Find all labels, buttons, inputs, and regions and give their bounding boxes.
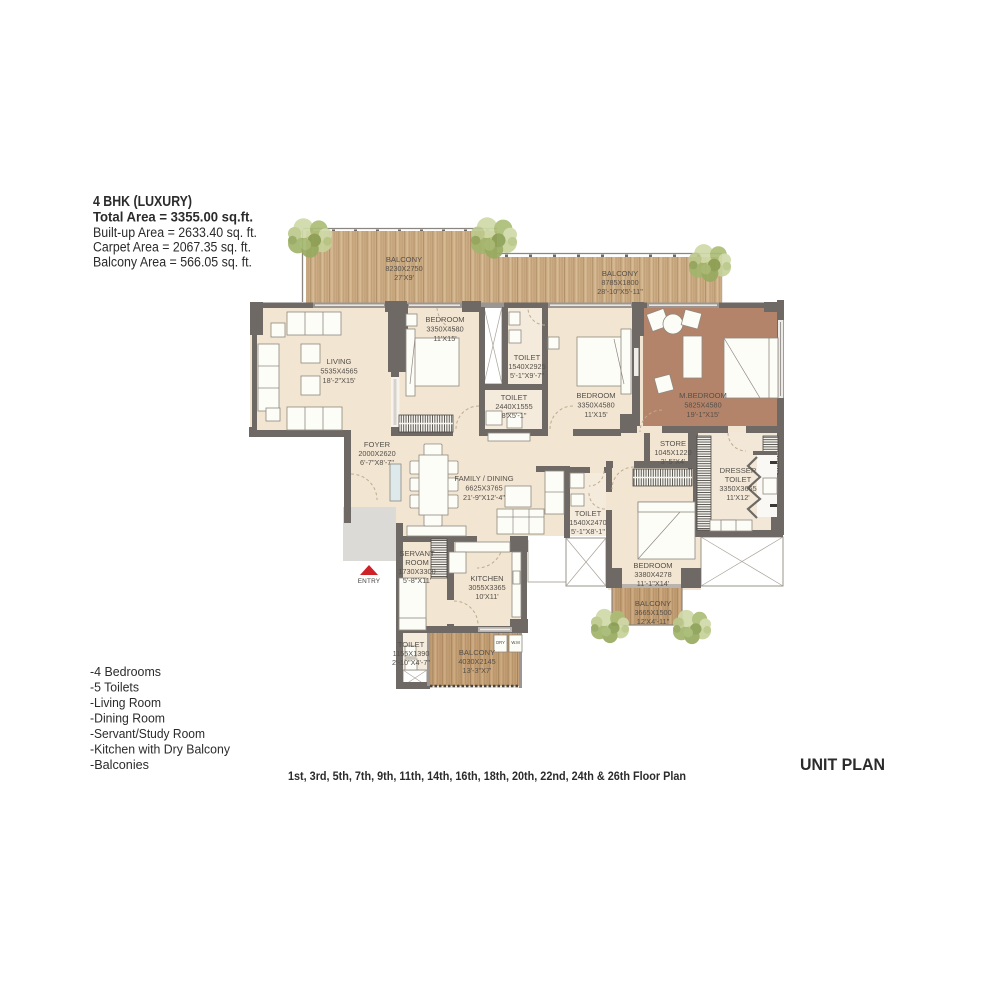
svg-text:10'X11': 10'X11' [475, 592, 499, 601]
svg-text:3665X1500: 3665X1500 [634, 608, 671, 617]
svg-text:21'-9"X12'-4": 21'-9"X12'-4" [463, 493, 505, 502]
svg-text:11'X15': 11'X15' [433, 334, 457, 343]
svg-text:TOILET: TOILET [398, 640, 425, 649]
svg-text:5'-1"X9'-7": 5'-1"X9'-7" [510, 371, 544, 380]
svg-text:1730X3300: 1730X3300 [398, 567, 435, 576]
svg-text:3'-5"X4': 3'-5"X4' [661, 457, 686, 466]
svg-text:SERVANT: SERVANT [399, 549, 435, 558]
svg-text:BEDROOM: BEDROOM [425, 315, 464, 324]
svg-text:ENTRY: ENTRY [358, 578, 381, 585]
svg-text:STORE: STORE [660, 439, 686, 448]
svg-text:13'-3"X7': 13'-3"X7' [463, 666, 493, 675]
svg-text:LIVING: LIVING [327, 357, 352, 366]
svg-text:4030X2145: 4030X2145 [458, 657, 495, 666]
svg-text:5535X4565: 5535X4565 [320, 367, 357, 376]
svg-text:3380X4278: 3380X4278 [634, 570, 671, 579]
svg-text:2'-10"X4'-7": 2'-10"X4'-7" [392, 658, 430, 667]
svg-text:TOILET: TOILET [514, 353, 541, 362]
svg-text:2000X2620: 2000X2620 [358, 449, 395, 458]
svg-text:6'-7"X8'-7": 6'-7"X8'-7" [360, 458, 394, 467]
svg-text:12'X4'-11": 12'X4'-11" [637, 617, 670, 626]
svg-text:-Dining Room: -Dining Room [90, 712, 165, 726]
svg-text:6625X3765: 6625X3765 [465, 484, 502, 493]
svg-text:-Living Room: -Living Room [90, 696, 161, 710]
svg-text:1045X1220: 1045X1220 [654, 448, 691, 457]
svg-text:W.M: W.M [511, 640, 520, 645]
svg-text:-5 Toilets: -5 Toilets [90, 681, 139, 695]
svg-text:3350X4580: 3350X4580 [577, 401, 614, 410]
svg-text:5'-1"X8'-1": 5'-1"X8'-1" [571, 527, 605, 536]
svg-text:28'-10"X5'-11": 28'-10"X5'-11" [597, 287, 643, 296]
svg-text:FOYER: FOYER [364, 440, 391, 449]
svg-text:TOILET: TOILET [501, 393, 528, 402]
svg-text:BEDROOM: BEDROOM [576, 391, 615, 400]
svg-text:27'X9': 27'X9' [394, 273, 414, 282]
svg-text:KITCHEN: KITCHEN [470, 574, 503, 583]
svg-text:2440X1555: 2440X1555 [495, 402, 532, 411]
svg-text:11'X12': 11'X12' [726, 493, 750, 502]
svg-text:5825X4580: 5825X4580 [684, 401, 721, 410]
svg-text:1155X1390: 1155X1390 [393, 649, 430, 658]
svg-text:8'X5'-1": 8'X5'-1" [502, 411, 527, 420]
svg-text:Total Area = 3355.00 sq.ft.: Total Area = 3355.00 sq.ft. [93, 209, 253, 225]
svg-text:3055X3365: 3055X3365 [468, 583, 505, 592]
svg-text:-4 Bedrooms: -4 Bedrooms [90, 665, 161, 679]
svg-text:BALCONY: BALCONY [386, 255, 422, 264]
svg-text:-Kitchen with Dry Balcony: -Kitchen with Dry Balcony [90, 743, 231, 757]
svg-text:M.BEDROOM: M.BEDROOM [679, 391, 727, 400]
svg-text:8230X2750: 8230X2750 [385, 264, 422, 273]
svg-text:Built-up Area = 2633.40 sq. ft: Built-up Area = 2633.40 sq. ft. [93, 225, 257, 240]
svg-text:BALCONY: BALCONY [602, 269, 638, 278]
svg-text:BEDROOM: BEDROOM [633, 561, 672, 570]
svg-text:3350X4580: 3350X4580 [426, 325, 463, 334]
svg-text:TOILET: TOILET [575, 509, 602, 518]
svg-text:BALCONY: BALCONY [459, 648, 495, 657]
svg-text:ROOM: ROOM [405, 558, 429, 567]
svg-text:Balcony Area = 566.05 sq. ft.: Balcony Area = 566.05 sq. ft. [93, 255, 252, 270]
svg-text:TOILET: TOILET [725, 475, 752, 484]
svg-text:1540X2925: 1540X2925 [508, 362, 545, 371]
svg-text:DRESSER: DRESSER [720, 466, 757, 475]
svg-text:FAMILY / DINING: FAMILY / DINING [454, 474, 513, 483]
svg-text:-Balconies: -Balconies [90, 758, 149, 772]
svg-text:8785X1800: 8785X1800 [601, 278, 638, 287]
svg-text:DRY: DRY [496, 640, 505, 645]
svg-text:1st, 3rd, 5th, 7th, 9th, 11th,: 1st, 3rd, 5th, 7th, 9th, 11th, 14th, 16t… [288, 769, 686, 783]
svg-text:1540X2470: 1540X2470 [569, 518, 606, 527]
svg-text:5'-8"X11': 5'-8"X11' [403, 576, 432, 585]
svg-text:19'-1"X15': 19'-1"X15' [687, 410, 721, 419]
svg-text:BALCONY: BALCONY [635, 599, 671, 608]
svg-text:11'X15': 11'X15' [584, 410, 608, 419]
svg-text:Carpet Area = 2067.35 sq. ft.: Carpet Area = 2067.35 sq. ft. [93, 240, 251, 255]
svg-text:18'-2"X15': 18'-2"X15' [323, 376, 357, 385]
svg-text:UNIT PLAN: UNIT PLAN [800, 756, 885, 774]
svg-text:4 BHK (LUXURY): 4 BHK (LUXURY) [93, 193, 192, 210]
svg-text:-Servant/Study Room: -Servant/Study Room [90, 727, 205, 741]
svg-text:3350X3665: 3350X3665 [719, 484, 756, 493]
svg-text:11'-1"X14': 11'-1"X14' [637, 579, 670, 588]
